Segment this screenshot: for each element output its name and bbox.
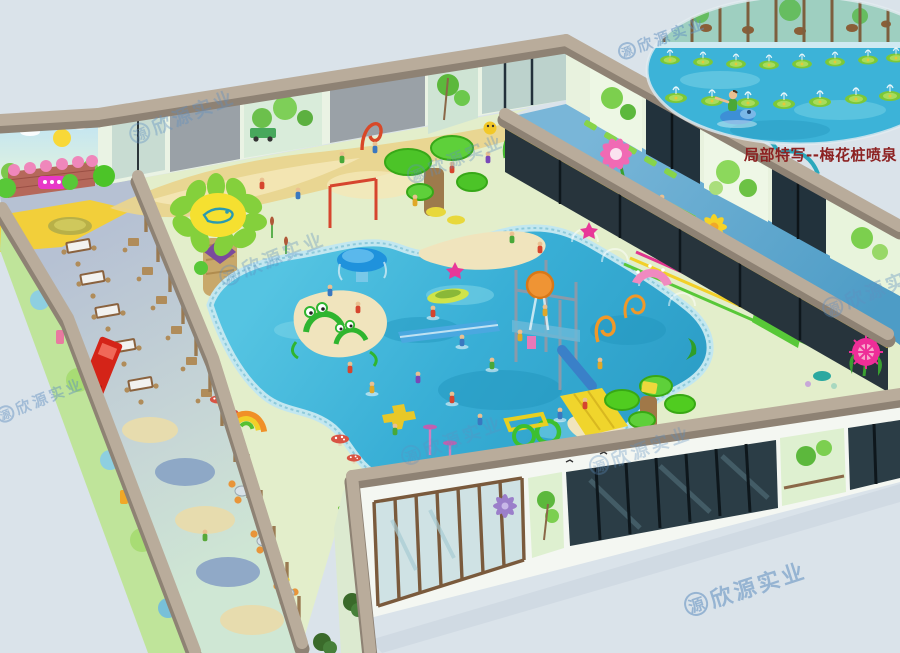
render-canvas (0, 0, 900, 653)
mural-sun (53, 129, 71, 147)
tipping-bucket (527, 272, 553, 298)
inset-caption: 局部特写--梅花桩喷泉 (744, 144, 900, 165)
face-sprayer (484, 122, 497, 135)
mural-truck (250, 128, 276, 138)
kiddie-table (813, 371, 831, 381)
flower-decal (493, 494, 517, 518)
render-page: 局部特写--梅花桩喷泉 源欣源实业 源欣源实业 源欣源实业 源欣源实业 源欣源实… (0, 0, 900, 653)
